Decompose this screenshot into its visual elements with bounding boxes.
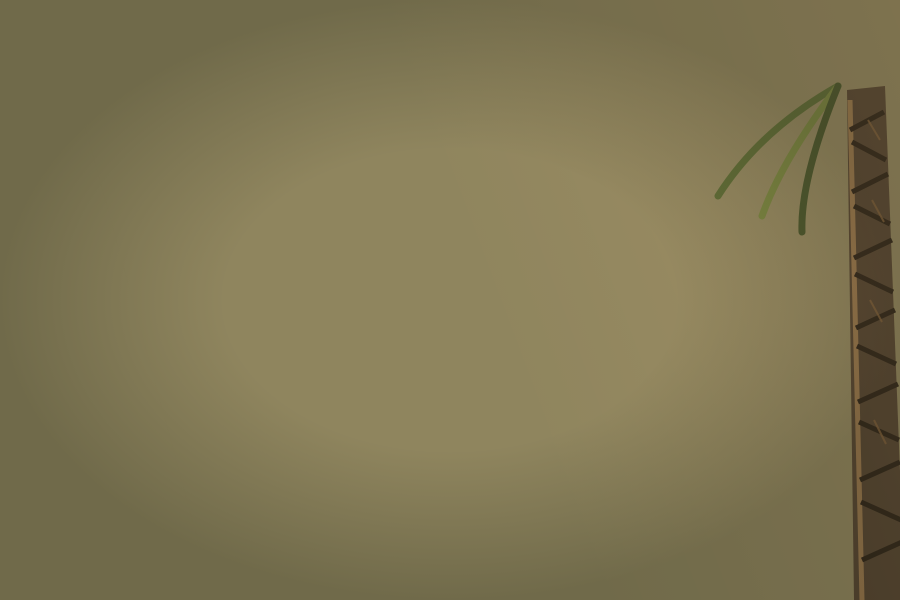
vignette — [0, 0, 900, 600]
architectural-render-scene — [0, 0, 900, 600]
render-canvas — [0, 0, 900, 600]
